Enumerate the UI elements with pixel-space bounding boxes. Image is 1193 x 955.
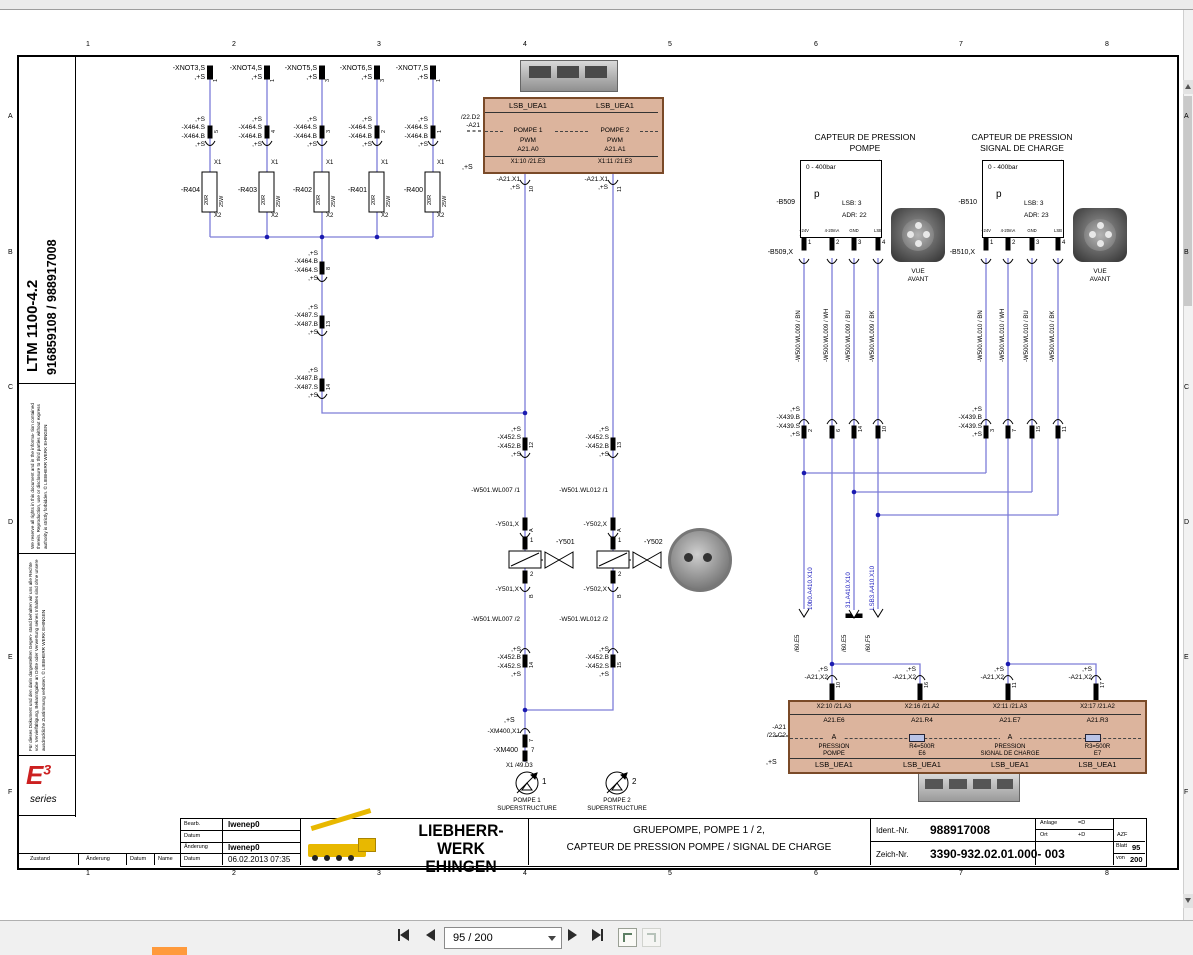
pin-number: 13 [326,321,332,327]
von-value: 200 [1130,855,1143,865]
grid-row-label: F [8,788,12,797]
connector-label: ,+S -A21,X2 [1036,666,1092,683]
box-pin: X2:11 /21.A3 [966,704,1054,712]
crane-logo [306,822,394,862]
connector-label: -Y501,X [467,586,519,594]
connector-label: ,+S -X464.S -X464.B ,+S [263,116,317,150]
grid-col-label: 3 [377,869,381,878]
von-label: von [1116,855,1125,862]
pin-number: 2 [836,240,839,248]
pin-number: 7 [529,739,535,742]
connector-label: ,+S -X464.S -X464.B ,+S [374,116,428,150]
ecu-module-photo [918,772,1020,802]
pin-number: 3 [858,240,861,248]
box-footer: LSB_UEA1 [878,760,966,770]
terminal-label: X1 [381,160,388,168]
sensor-pin-name: 4-20mA [995,228,1021,233]
grid-col-label: 6 [814,40,818,49]
pin-number: 11 [617,186,623,192]
pin-number: 1 [990,240,993,248]
wire-label: -W500.WL009 / BN [796,310,802,362]
connector-label: ,+S -X464.S -X464.B ,+S [318,116,372,150]
device-reference: -B510 [931,198,977,207]
offpage-wire-label: 10b0.A410.X10 [807,567,814,610]
channel-name: POMPE 2 [590,127,640,135]
wire-label: -W501.WL007 /1 [448,487,520,495]
resistor-wattage: 25W [331,196,337,207]
sensor-range: 0 - 400bar [988,164,1018,172]
connector-label: ,+S -X439.B -X439.S ,+S [744,406,800,440]
pin-number: 10 [836,682,842,688]
resistor-icon [909,734,925,742]
channel-signal: PWM [485,137,571,145]
e3-series: series [30,794,57,805]
scrollbar-down-button[interactable] [1183,894,1193,908]
pin-number: 14 [858,426,864,432]
pin-letter: B [529,594,535,598]
coil-pin: 2 [530,572,533,580]
pin-number: 7 [1012,429,1018,432]
grid-col-label: 2 [232,40,236,49]
field-value: 06.02.2013 07:35 [228,855,290,865]
box-footer: LSB_UEA1 [1054,760,1141,770]
component-label: -XNOT6,S ,+S [320,64,372,82]
connector-label: ,+S -X439.B -X439.S ,+S [926,406,982,440]
component-label: -XNOT5,S ,+S [265,64,317,82]
pin-number: 8 [326,267,332,270]
connector-label: ,+S -A21,X2 [772,666,828,683]
field-label: Datum [184,833,200,840]
resistor-value: 20R [261,195,267,205]
offpage-wire-label: LSB3.A410.X10 [869,566,876,610]
resistor-label: -R402 [270,186,312,195]
top-strip [0,0,1193,10]
sensor-pin-name: LSB [1045,228,1071,233]
scrollbar-up-button[interactable] [1183,80,1193,94]
box-header: LSB_UEA1 [572,101,658,111]
connector-label: ,+S -X452.S -X452.B ,+S [555,426,609,460]
sensor-pin-name: LSB [865,228,891,233]
view-label: VUE AVANT [888,268,948,285]
grid-col-label: 7 [959,40,963,49]
box-footer: LSB_UEA1 [790,760,878,770]
connector-label: ,+S -X487.B -X487.S ,+S [262,367,318,401]
coil-pin: 2 [618,572,621,580]
connector-label: -B510,X [925,248,975,257]
blatt-value: 95 [1132,843,1140,853]
pin-number: 13 [617,442,623,448]
zeich-label: Zeich-Nr. [876,850,908,860]
schematic-viewer: 95 / 200 1 2 3 4 5 6 7 8 1 2 3 4 5 6 7 8… [0,0,1193,955]
wire-label: -W501.WL012 /1 [536,487,608,495]
pin-number: 1 [436,79,442,82]
e3-logo: E3 [26,762,51,788]
channel-signal: PWM [572,137,658,145]
ident-label: Ident.-Nr. [876,826,909,836]
grid-row-label: C [1184,383,1189,392]
grid-col-label: 1 [86,869,90,878]
grid-row-label: B [1184,248,1189,257]
connector-label: ,+S -A21,X2 [948,666,1004,683]
scrollbar-thumb[interactable] [1184,96,1192,306]
potential-label: ,+S [504,716,515,725]
pin-number: 14 [529,662,535,668]
device-reference: /22.D2 -A21 [432,114,480,131]
terminal-label: X2 [271,213,278,221]
offpage-reference: /60.E5 [842,635,848,652]
resistor-label: -R403 [215,186,257,195]
resistor-wattage: 25W [276,196,282,207]
pin-number: 11 [1012,682,1018,688]
field-label: Änderung [184,844,208,851]
pin-number: 12 [529,442,535,448]
grid-row-label: D [8,518,13,527]
previous-page-button[interactable] [426,929,435,941]
grid-col-label: 6 [814,869,818,878]
pin-number: 6 [836,429,842,432]
connector-block-photo [520,60,618,92]
grid-row-label: C [8,383,13,392]
sensor-symbol: p [996,188,1002,201]
terminal-label: X1 [437,160,444,168]
device-reference: -B509 [749,198,795,207]
resistor-icon [1085,734,1101,742]
connector-label: -Y501,X [467,521,519,529]
sensor-adr: ADR: 22 [842,212,867,220]
pin-number: 2 [1012,240,1015,248]
grid-col-label: 8 [1105,869,1109,878]
box-address: A21.R3 [1054,717,1141,725]
resistor-wattage: 25W [386,196,392,207]
grid-col-label: 5 [668,869,672,878]
box-header: LSB_UEA1 [485,101,571,111]
aenderung-label: Änderung [86,856,110,863]
pin-number: 15 [617,662,623,668]
grid-row-label: B [8,248,13,257]
coil-pin: 1 [618,538,621,546]
pin-number: 17 [1100,682,1106,688]
grid-col-label: 5 [668,40,672,49]
device-reference: -A21 /22.C2 [740,724,786,741]
pin-number: 15 [1036,426,1042,432]
next-page-button[interactable] [568,929,577,941]
pin-number: 4 [882,240,885,248]
box-address: A21.E6 [790,717,878,725]
previous-view-icon [623,933,632,942]
cross-reference: X1 /49.D3 [506,763,533,771]
valve-label: -Y502 [644,538,663,547]
grid-col-label: 4 [523,869,527,878]
pump-number: 2 [632,777,636,787]
anlage-label: Anlage [1040,820,1057,827]
terminal-label: X2 [214,213,221,221]
box-address: A21.E7 [966,717,1054,725]
channel-name: POMPE 1 [503,127,553,135]
connector-label: ,+S -X464.B -X464.S ,+S [262,250,318,284]
terminal-label: X1 [214,160,221,168]
terminal-label: X1 [271,160,278,168]
potential-label: ,+S [766,758,777,767]
wire-label: -W500.WL009 / BK [870,311,876,362]
grid-col-label: 3 [377,40,381,49]
blatt-label: Blatt [1116,843,1127,850]
zustand-label: Zustand [30,856,50,863]
box-symbol: A [824,733,844,742]
plug-photo [668,528,732,592]
sensor-adr: ADR: 23 [1024,212,1049,220]
pin-letter: A [529,528,535,532]
grid-col-label: 7 [959,869,963,878]
name-label: Name [158,856,173,863]
pin-number: 10 [529,186,535,192]
box-pin: X2:17 /21.A2 [1054,704,1141,712]
component-label: -XM400 [466,746,518,755]
resistor-wattage: 25W [442,196,448,207]
grid-row-label: E [8,653,13,662]
taskbar-fragment [152,947,187,955]
box-function: E6 [878,751,966,759]
field-value: lwenep0 [228,820,260,830]
component-label: -XNOT3,S ,+S [153,64,205,82]
pump-number: 1 [542,777,546,787]
company-name: LIEBHERR-WERK EHINGEN [401,822,521,876]
pin-number: 3 [1036,240,1039,248]
box-footer: LSB_UEA1 [966,760,1054,770]
pin-letter: A [617,528,623,532]
zeich-value: 3390-932.02.01.000- 003 [930,847,1065,863]
sensor-title: CAPTEUR DE PRESSION SIGNAL DE CHARGE [947,132,1097,154]
next-view-button[interactable] [642,928,661,947]
sensor-pin-name: GND [841,228,867,233]
sidebar-model: LTM 1100-4.2 [24,280,41,372]
combobox-dropdown-arrow[interactable] [548,936,556,941]
box-function: POMPE [790,751,878,759]
offpage-reference: /60.E5 [795,635,801,652]
channel-address: A21.A0 [485,146,571,154]
previous-page-icon [426,929,435,941]
pin-letter: B [617,594,623,598]
box-pin: X2:10 /21.A3 [790,704,878,712]
connector-label: ,+S -X452.S -X452.B ,+S [467,426,521,460]
resistor-label: -R404 [158,186,200,195]
grid-col-label: 1 [86,40,90,49]
round-connector-photo [1073,208,1127,262]
sensor-range: 0 - 400bar [806,164,836,172]
connector-label: -Y502,X [555,586,607,594]
wire-label: -W500.WL010 / WH [1000,309,1006,362]
lsb-uea1-bottom-box: X2:10 /21.A3 X2:16 /21.A2 X2:11 /21.A3 X… [788,700,1147,774]
channel-address: A21.A1 [572,146,658,154]
sensor-pin-name: +24V [791,228,817,233]
drawing-title-line1: GRUEPOMPE, POMPE 1 / 2, [530,824,868,837]
sidebar-legal-de: Für dieses Dokument und den darin darges… [28,559,47,751]
pin-number: 3 [990,429,996,432]
connector-label: ,+S -X452.B -X452.S ,+S [555,646,609,680]
lsb-uea1-top-box: LSB_UEA1 LSB_UEA1 POMPE 1 POMPE 2 PWM PW… [483,97,664,174]
grid-row-label: F [1184,788,1188,797]
ort-value: +D [1078,832,1085,839]
wire-label: -W500.WL009 / WH [824,309,830,362]
pin-number: 1 [808,240,811,248]
grid-col-label: 4 [523,40,527,49]
component-label: -XNOT7,S ,+S [376,64,428,82]
grid-row-label: D [1184,518,1189,527]
sensor-pin-name: GND [1019,228,1045,233]
grid-col-label: 8 [1105,40,1109,49]
last-page-icon [601,929,603,941]
terminal-label: X2 [437,213,444,221]
ort-label: Ort [1040,832,1048,839]
drawing-title-line2: CAPTEUR DE PRESSION POMPE / SIGNAL DE CH… [530,841,868,854]
page-number-combobox[interactable]: 95 / 200 [444,927,562,949]
valve-label: -Y501 [556,538,575,547]
component-label: -XNOT4,S ,+S [210,64,262,82]
resistor-wattage: 25W [219,196,225,207]
sensor-lsb: LSB: 3 [1024,200,1044,208]
connector-label: -B509,X [743,248,793,257]
box-address: A21.R4 [878,717,966,725]
wire-label: -W500.WL009 / BU [846,310,852,362]
resistor-value: 20R [371,195,377,205]
wire-label: -W500.WL010 / BN [978,310,984,362]
coil-pin: 1 [530,538,533,546]
pin-number: 4 [1062,240,1065,248]
grid-row-label: E [1184,653,1189,662]
offpage-wire-label: 31.A410.X10 [845,572,852,608]
terminal-label: X2 [326,213,333,221]
pin-number: 10 [882,426,888,432]
page-number-value[interactable]: 95 / 200 [445,932,548,944]
grid-row-label: A [8,112,13,121]
resistor-label: -R400 [381,186,423,195]
connector-label: ,+S -A21,X2 [860,666,916,683]
anlage-value: =D [1078,820,1085,827]
box-function: E7 [1054,751,1141,759]
channel-pin: X1:10 /21.E3 [485,159,571,167]
wire-label: -W501.WL007 /2 [448,616,520,624]
sensor-lsb: LSB: 3 [842,200,862,208]
azf-label: AZF [1117,832,1127,839]
pin-number: 7 [531,748,534,756]
sidebar-numbers: 916859108 / 988917008 [45,239,59,375]
potential-label: ,+S [462,163,473,172]
pump-label: POMPE 1 SUPERSTRUCTURE [491,797,563,813]
connector-label: ,+S -X464.S -X464.B ,+S [208,116,262,150]
field-label: Bearb. [184,821,200,828]
pump-label: POMPE 2 SUPERSTRUCTURE [581,797,653,813]
wire-label: -W500.WL010 / BU [1024,310,1030,362]
offpage-reference: /60.F5 [866,635,872,652]
pin-number: 11 [1062,426,1068,432]
connector-label: ,+S -X487.S -X487.B ,+S [262,304,318,338]
pin-number: 14 [326,384,332,390]
sensor-symbol: p [814,188,820,201]
resistor-label: -R401 [325,186,367,195]
box-pin: X2:16 /21.A2 [878,704,966,712]
field-label: Datum [184,856,200,863]
view-label: VUE AVANT [1070,268,1130,285]
ident-value: 988917008 [930,823,990,839]
connector-label: -XM400,X1 [458,728,520,736]
connector-label: -A21.X1 ,+S [556,176,608,193]
grid-col-label: 2 [232,869,236,878]
wire-label: -W501.WL012 /2 [536,616,608,624]
resistor-value: 20R [316,195,322,205]
terminal-label: X2 [381,213,388,221]
next-page-icon [568,929,577,941]
wire-label: -W500.WL010 / BK [1050,311,1056,362]
pin-number: 2 [808,429,814,432]
terminal-label: X1 [326,160,333,168]
datum-label: Datum [130,856,146,863]
pin-number: 16 [924,682,930,688]
resistor-value: 20R [204,195,210,205]
field-value: lwenep0 [228,843,260,853]
sensor-title: CAPTEUR DE PRESSION POMPE [790,132,940,154]
previous-view-button[interactable] [618,928,637,947]
connector-label: ,+S -X464.S -X464.B ,+S [151,116,205,150]
resistor-value: 20R [427,195,433,205]
connector-label: ,+S -X452.B -X452.S ,+S [467,646,521,680]
last-page-button[interactable] [592,929,603,941]
next-view-icon [647,933,656,942]
sidebar-legal-en: We reserve all rights in this document a… [30,393,49,549]
grid-row-label: A [1184,112,1189,121]
box-symbol: A [1000,733,1020,742]
channel-pin: X1:11 /21.E3 [572,159,658,167]
connector-label: -Y502,X [555,521,607,529]
connector-label: -A21.X1 ,+S [468,176,520,193]
box-function: SIGNAL DE CHARGE [966,751,1054,759]
first-page-button[interactable] [398,929,409,941]
